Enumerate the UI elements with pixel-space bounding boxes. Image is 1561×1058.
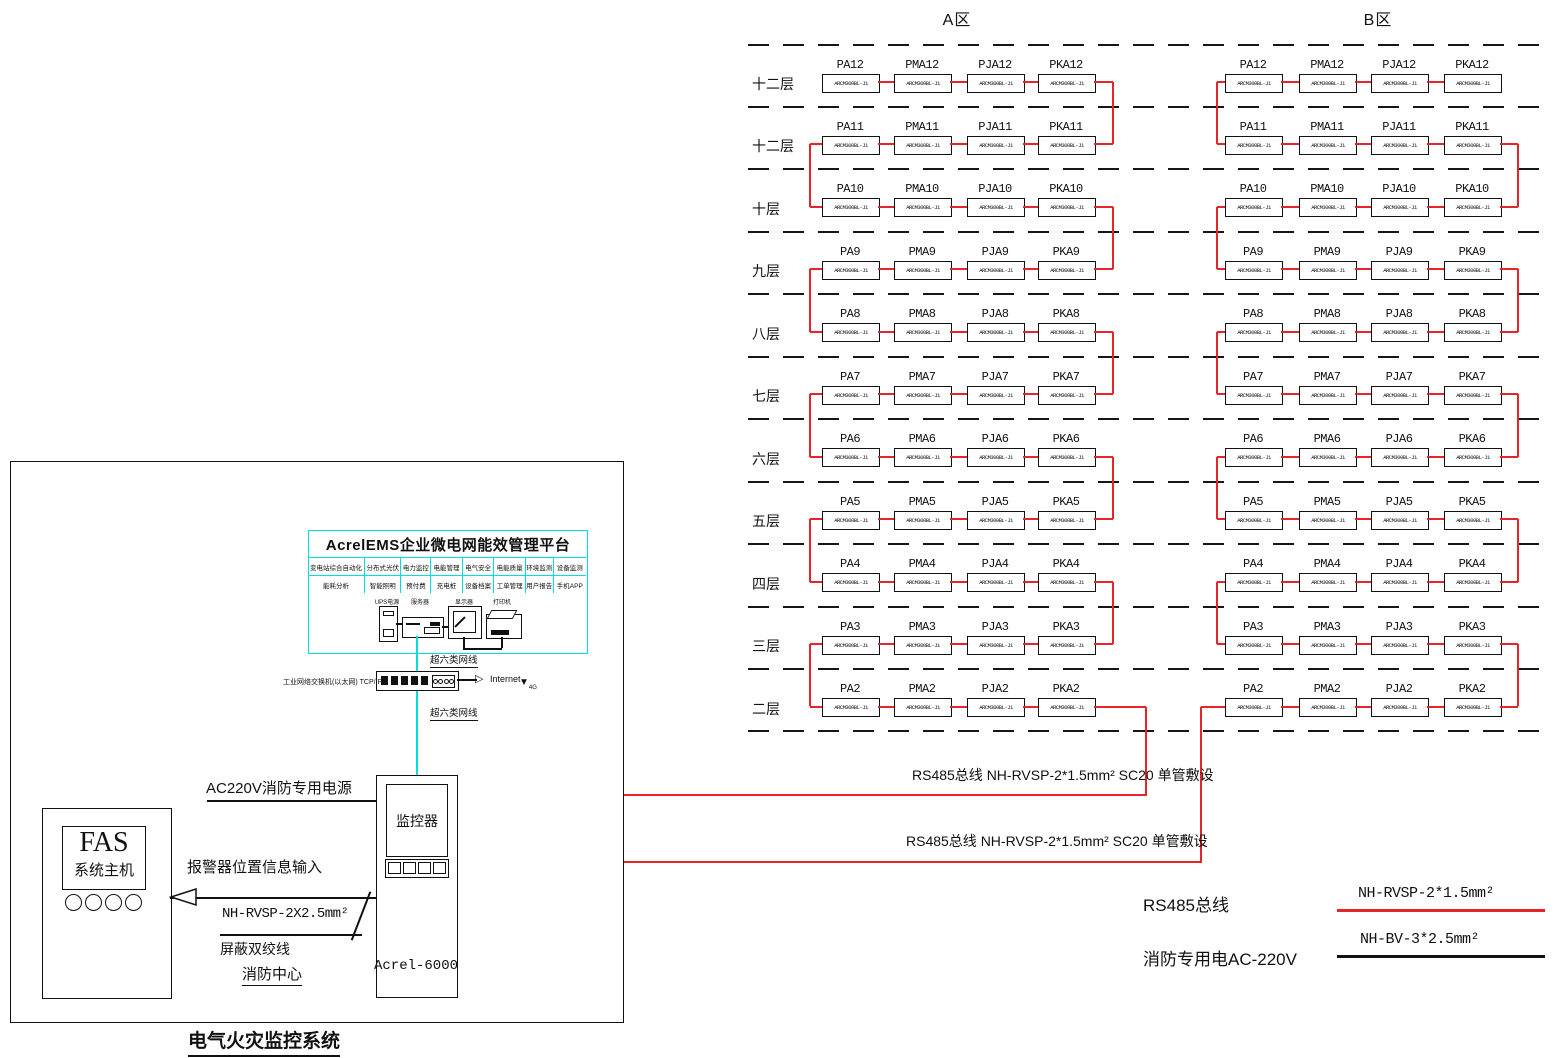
arcm-device-box: ARCM300BL-J1: [1371, 74, 1429, 93]
rs485-segment: [1217, 643, 1225, 645]
arcm-device-box: ARCM300BL-J1: [1038, 573, 1096, 592]
rs485-segment: [1500, 581, 1518, 583]
arcm-device-box: ARCM300BL-J1: [1444, 386, 1502, 405]
rs485-riser: [1517, 644, 1519, 706]
device-tag-label: PKA11: [1049, 120, 1083, 134]
platform-feature-grid: 变电站综合自动化分布式光伏电力监控电能管理电气安全电能质量环境监测设备监测能耗分…: [308, 557, 586, 593]
rs485-segment: [810, 206, 822, 208]
rs485-segment: [1500, 331, 1518, 333]
arcm-device-box: ARCM300BL-J1: [1299, 386, 1357, 405]
arcm-device-box: ARCM300BL-J1: [1299, 511, 1357, 530]
device-tag-label: PA11: [1240, 120, 1267, 134]
arcm-device-box: ARCM300BL-J1: [1038, 448, 1096, 467]
legend-red-line: [1337, 909, 1545, 912]
device-tag-label: PA2: [840, 682, 860, 696]
internet-line: [457, 679, 477, 681]
arcm-device-box: ARCM300BL-J1: [1299, 74, 1357, 93]
device-tag-label: PMA10: [905, 182, 939, 196]
rs485-segment: [1023, 331, 1038, 333]
arcm-device-box: ARCM300BL-J1: [1444, 136, 1502, 155]
network-switch-icon: [376, 671, 459, 691]
device-tag-label: PJA5: [982, 495, 1009, 509]
rs485-segment: [1094, 143, 1113, 145]
legend-power-label: 消防专用电AC-220V: [1143, 945, 1297, 970]
zone-a-title: A区: [943, 6, 972, 30]
device-tag-label: PJA2: [982, 682, 1009, 696]
arcm-device-box: ARCM300BL-J1: [894, 573, 952, 592]
cabinet-model-label: Acrel-6000: [374, 958, 458, 974]
platform-feature-cell: 预付费: [400, 575, 430, 593]
device-tag-label: PMA9: [1314, 245, 1341, 259]
rs485-segment: [810, 331, 822, 333]
device-tag-label: PMA7: [909, 370, 936, 384]
device-tag-label: PA10: [837, 182, 864, 196]
rs485-bus1-label: RS485总线 NH-RVSP-2*1.5mm² SC20 单管敷设: [912, 765, 1214, 785]
arcm-device-box: ARCM300BL-J1: [1225, 573, 1283, 592]
arrow-left-icon: [168, 887, 198, 907]
monitor-unit-label: 监控器: [396, 811, 438, 831]
device-tag-label: PKA4: [1053, 557, 1080, 571]
arcm-device-box: ARCM300BL-J1: [822, 698, 880, 717]
rs485-segment: [1355, 643, 1371, 645]
arcm-device-box: ARCM300BL-J1: [967, 136, 1025, 155]
rs485-segment: [1500, 518, 1518, 520]
rs485-segment: [878, 393, 894, 395]
arcm-device-box: ARCM300BL-J1: [822, 323, 880, 342]
device-tag-label: PJA10: [1382, 182, 1416, 196]
printer-label: 打印机: [493, 597, 511, 606]
rs485-segment: [1427, 143, 1444, 145]
rs485-segment: [1355, 331, 1371, 333]
rs485-segment: [1281, 331, 1299, 333]
arcm-device-box: ARCM300BL-J1: [1299, 261, 1357, 280]
device-tag-label: PMA9: [909, 245, 936, 259]
rs485-segment: [810, 393, 822, 395]
cat6-cable-label-top: 超六类网线: [430, 652, 478, 668]
floor-slab-line: [748, 418, 1548, 420]
arcm-device-box: ARCM300BL-J1: [967, 323, 1025, 342]
device-tag-label: PJA11: [978, 120, 1012, 134]
rs485-segment: [1427, 206, 1444, 208]
rs485-trunk-stub: [1094, 706, 1146, 708]
device-tag-label: PKA8: [1459, 307, 1486, 321]
monitor-label: 显示器: [455, 597, 473, 606]
rs485-segment: [950, 456, 967, 458]
rs485-segment: [878, 331, 894, 333]
rs485-segment: [950, 268, 967, 270]
rs485-riser: [1517, 144, 1519, 206]
rs485-segment: [1094, 393, 1113, 395]
arcm-device-box: ARCM300BL-J1: [967, 573, 1025, 592]
rs485-segment: [1500, 268, 1518, 270]
rs485-segment: [1094, 581, 1113, 583]
rs485-segment: [1023, 706, 1038, 708]
rs485-riser: [1112, 332, 1114, 394]
device-tag-label: PMA6: [909, 432, 936, 446]
floor-slab-line: [748, 231, 1548, 233]
rs485-segment: [878, 456, 894, 458]
device-tag-label: PJA6: [1386, 432, 1413, 446]
floor-slab-line: [748, 481, 1548, 483]
device-tag-label: PMA2: [909, 682, 936, 696]
system-title: 电气火灾监控系统: [188, 1026, 340, 1057]
rs485-segment: [1500, 206, 1518, 208]
rs485-segment: [1094, 331, 1113, 333]
fire-center-label: 消防中心: [242, 963, 302, 986]
device-tag-label: PA5: [1243, 495, 1263, 509]
arcm-device-box: ARCM300BL-J1: [1038, 323, 1096, 342]
device-tag-label: PKA12: [1455, 58, 1489, 72]
arcm-device-box: ARCM300BL-J1: [1371, 698, 1429, 717]
rs485-segment: [878, 518, 894, 520]
device-tag-label: PA5: [840, 495, 860, 509]
platform-feature-cell: 电能质量: [493, 557, 525, 575]
floor-label: 九层: [752, 261, 780, 281]
floor-slab-line: [748, 606, 1548, 608]
platform-feature-cell: 电能管理: [430, 557, 462, 575]
device-tag-label: PJA6: [982, 432, 1009, 446]
wireless-4g-icon: ▼4G: [519, 672, 537, 691]
arcm-device-box: ARCM300BL-J1: [1371, 573, 1429, 592]
platform-feature-cell: 智能照明: [364, 575, 400, 593]
floor-slab-line: [748, 293, 1548, 295]
cable-spec-underline: [220, 934, 362, 936]
arcm-device-box: ARCM300BL-J1: [1444, 323, 1502, 342]
arcm-device-box: ARCM300BL-J1: [1371, 136, 1429, 155]
rs485-riser: [809, 519, 811, 581]
fas-indicator-2: [85, 894, 102, 911]
arcm-device-box: ARCM300BL-J1: [1371, 386, 1429, 405]
arcm-device-box: ARCM300BL-J1: [1371, 448, 1429, 467]
fas-inner-box: FAS 系统主机: [62, 826, 146, 890]
arcm-device-box: ARCM300BL-J1: [1038, 386, 1096, 405]
rs485-segment: [1023, 518, 1038, 520]
rs485-segment: [878, 268, 894, 270]
arcm-device-box: ARCM300BL-J1: [1371, 636, 1429, 655]
switch-label: 工业网络交换机(以太网) TCP/IP: [283, 677, 382, 687]
rs485-segment: [878, 143, 894, 145]
arcm-device-box: ARCM300BL-J1: [1299, 136, 1357, 155]
rs485-segment: [1427, 331, 1444, 333]
device-tag-label: PKA7: [1459, 370, 1486, 384]
rs485-segment: [1355, 81, 1371, 83]
floor-slab-line: [748, 168, 1548, 170]
rs485-segment: [810, 706, 822, 708]
rs485-segment: [950, 518, 967, 520]
arcm-device-box: ARCM300BL-J1: [967, 448, 1025, 467]
alarm-input-label: 报警器位置信息输入: [187, 856, 322, 877]
rs485-segment: [810, 643, 822, 645]
rs485-segment: [1281, 81, 1299, 83]
arcm-device-box: ARCM300BL-J1: [894, 698, 952, 717]
arcm-device-box: ARCM300BL-J1: [1038, 261, 1096, 280]
fas-indicator-3: [105, 894, 122, 911]
device-tag-label: PKA5: [1053, 495, 1080, 509]
platform-feature-cell: 工单管理: [493, 575, 525, 593]
monitor-unit-box: 监控器: [386, 784, 448, 857]
platform-feature-cell: 电气安全: [462, 557, 494, 575]
device-tag-label: PA10: [1240, 182, 1267, 196]
rs485-segment: [1281, 706, 1299, 708]
device-tag-label: PA9: [1243, 245, 1263, 259]
arrow-right-icon: ▷: [475, 672, 483, 685]
platform-feature-cell: 电力监控: [400, 557, 430, 575]
device-tag-label: PMA12: [1310, 58, 1344, 72]
rs485-segment: [950, 331, 967, 333]
floor-label: 十二层: [752, 74, 794, 94]
rs485-segment: [1094, 643, 1113, 645]
rs485-riser: [809, 394, 811, 456]
rs485-segment: [1427, 581, 1444, 583]
ethernet-cable-upper: [416, 636, 418, 671]
rs485-segment: [1427, 706, 1444, 708]
device-tag-label: PMA11: [1310, 120, 1344, 134]
device-tag-label: PJA9: [982, 245, 1009, 259]
arcm-device-box: ARCM300BL-J1: [1038, 636, 1096, 655]
rs485-segment: [1500, 393, 1518, 395]
ac220v-power-line: [207, 800, 376, 802]
arcm-device-box: ARCM300BL-J1: [1038, 198, 1096, 217]
rs485-segment: [1023, 456, 1038, 458]
arcm-device-box: ARCM300BL-J1: [1299, 323, 1357, 342]
platform-feature-cell: 充电桩: [430, 575, 462, 593]
device-tag-label: PMA10: [1310, 182, 1344, 196]
device-tag-label: PA6: [840, 432, 860, 446]
rs485-segment: [1217, 206, 1225, 208]
arcm-device-box: ARCM300BL-J1: [1225, 136, 1283, 155]
rs485-segment: [1094, 81, 1113, 83]
rs485-riser: [1112, 457, 1114, 519]
monitor-icon: [448, 606, 482, 639]
arcm-device-box: ARCM300BL-J1: [822, 386, 880, 405]
device-tag-label: PMA4: [1314, 557, 1341, 571]
device-tag-label: PKA10: [1455, 182, 1489, 196]
rs485-segment: [1094, 518, 1113, 520]
device-tag-label: PA4: [840, 557, 860, 571]
arcm-device-box: ARCM300BL-J1: [967, 74, 1025, 93]
rs485-segment: [1023, 206, 1038, 208]
floor-slab-line: [748, 106, 1548, 108]
arcm-device-box: ARCM300BL-J1: [1225, 261, 1283, 280]
platform-feature-cell: 能耗分析: [308, 575, 364, 593]
rs485-segment: [1281, 206, 1299, 208]
floor-label: 十二层: [752, 136, 794, 156]
legend-black-line: [1337, 955, 1545, 958]
arcm-device-box: ARCM300BL-J1: [1038, 136, 1096, 155]
rs485-segment: [1500, 643, 1518, 645]
rs485-segment: [1281, 581, 1299, 583]
floor-label: 三层: [752, 636, 780, 656]
rs485-segment: [1427, 456, 1444, 458]
legend-rs485-label: RS485总线: [1143, 891, 1229, 916]
device-tag-label: PMA7: [1314, 370, 1341, 384]
floor-slab-line: [748, 543, 1548, 545]
rs485-riser: [1112, 207, 1114, 269]
device-tag-label: PKA3: [1459, 620, 1486, 634]
rs485-riser: [809, 644, 811, 706]
arcm-device-box: ARCM300BL-J1: [1299, 636, 1357, 655]
arcm-device-box: ARCM300BL-J1: [894, 386, 952, 405]
device-tag-label: PJA12: [978, 58, 1012, 72]
arcm-device-box: ARCM300BL-J1: [822, 573, 880, 592]
device-tag-label: PKA2: [1053, 682, 1080, 696]
arcm-device-box: ARCM300BL-J1: [1225, 323, 1283, 342]
device-tag-label: PKA5: [1459, 495, 1486, 509]
device-tag-label: PKA9: [1459, 245, 1486, 259]
rs485-segment: [1094, 206, 1113, 208]
arcm-device-box: ARCM300BL-J1: [1225, 74, 1283, 93]
rs485-segment: [1355, 518, 1371, 520]
rs485-riser: [809, 269, 811, 331]
floor-label: 八层: [752, 324, 780, 344]
rs485-segment: [1500, 456, 1518, 458]
arcm-device-box: ARCM300BL-J1: [967, 636, 1025, 655]
device-tag-label: PJA9: [1386, 245, 1413, 259]
rs485-riser: [1216, 457, 1218, 519]
rs485-segment: [950, 81, 967, 83]
rs485-segment: [1500, 143, 1518, 145]
device-tag-label: PJA8: [1386, 307, 1413, 321]
rs485-riser: [1112, 582, 1114, 644]
device-tag-label: PMA3: [909, 620, 936, 634]
rs485-segment: [1427, 643, 1444, 645]
floor-label: 五层: [752, 511, 780, 531]
server-icon: [402, 617, 444, 638]
fas-title: FAS: [63, 827, 145, 859]
arcm-device-box: ARCM300BL-J1: [1371, 261, 1429, 280]
floor-label: 七层: [752, 386, 780, 406]
fas-indicator-4: [125, 894, 142, 911]
rs485-segment: [1281, 518, 1299, 520]
rs485-segment: [1355, 393, 1371, 395]
device-tag-label: PKA4: [1459, 557, 1486, 571]
arcm-device-box: ARCM300BL-J1: [1038, 511, 1096, 530]
arcm-device-box: ARCM300BL-J1: [894, 323, 952, 342]
floor-slab-line: [748, 44, 1548, 46]
platform-feature-cell: 分布式光伏: [364, 557, 400, 575]
rs485-riser: [1216, 82, 1218, 144]
device-tag-label: PA11: [837, 120, 864, 134]
rs485-segment: [810, 456, 822, 458]
arcm-device-box: ARCM300BL-J1: [1225, 636, 1283, 655]
device-tag-label: PJA7: [982, 370, 1009, 384]
arcm-device-box: ARCM300BL-J1: [822, 198, 880, 217]
rs485-segment: [878, 206, 894, 208]
rs485-segment: [1217, 581, 1225, 583]
rs485-trunk-stub: [1201, 706, 1225, 708]
device-tag-label: PMA5: [909, 495, 936, 509]
rs485-segment: [1355, 143, 1371, 145]
device-tag-label: PKA11: [1455, 120, 1489, 134]
device-tag-label: PJA4: [982, 557, 1009, 571]
rs485-segment: [878, 706, 894, 708]
device-tag-label: PMA8: [1314, 307, 1341, 321]
rs485-segment: [950, 581, 967, 583]
arcm-device-box: ARCM300BL-J1: [1225, 698, 1283, 717]
arcm-device-box: ARCM300BL-J1: [967, 198, 1025, 217]
arcm-device-box: ARCM300BL-J1: [894, 636, 952, 655]
floor-label: 十层: [752, 199, 780, 219]
printer-icon: [486, 614, 522, 639]
arcm-device-box: ARCM300BL-J1: [1444, 698, 1502, 717]
alarm-input-line: [170, 897, 376, 899]
device-tag-label: PKA12: [1049, 58, 1083, 72]
rs485-riser: [1517, 269, 1519, 331]
arcm-device-box: ARCM300BL-J1: [1299, 198, 1357, 217]
arcm-device-box: ARCM300BL-J1: [1371, 198, 1429, 217]
floor-label: 六层: [752, 449, 780, 469]
device-tag-label: PJA3: [1386, 620, 1413, 634]
arcm-device-box: ARCM300BL-J1: [894, 136, 952, 155]
device-tag-label: PMA12: [905, 58, 939, 72]
device-tag-label: PA12: [1240, 58, 1267, 72]
platform-feature-cell: 手机APP: [553, 575, 586, 593]
rs485-segment: [878, 643, 894, 645]
rs485-segment: [1217, 81, 1225, 83]
device-tag-label: PA8: [1243, 307, 1263, 321]
arcm-device-box: ARCM300BL-J1: [822, 74, 880, 93]
fas-subtitle: 系统主机: [63, 859, 145, 880]
device-tag-label: PMA6: [1314, 432, 1341, 446]
device-tag-label: PKA9: [1053, 245, 1080, 259]
zone-b-title: B区: [1364, 6, 1393, 30]
arcm-device-box: ARCM300BL-J1: [1225, 448, 1283, 467]
platform-feature-cell: 用户报告: [525, 575, 553, 593]
arcm-device-box: ARCM300BL-J1: [1371, 511, 1429, 530]
rs485-segment: [1355, 706, 1371, 708]
arcm-device-box: ARCM300BL-J1: [1444, 448, 1502, 467]
rs485-riser: [809, 144, 811, 206]
arcm-device-box: ARCM300BL-J1: [822, 136, 880, 155]
device-tag-label: PA3: [1243, 620, 1263, 634]
rs485-segment: [1355, 206, 1371, 208]
arcm-device-box: ARCM300BL-J1: [1444, 74, 1502, 93]
arcm-device-box: ARCM300BL-J1: [1444, 261, 1502, 280]
internet-label: Internet: [490, 674, 521, 684]
rs485-segment: [1427, 81, 1444, 83]
rs485-segment: [878, 81, 894, 83]
device-tag-label: PA6: [1243, 432, 1263, 446]
device-tag-label: PMA2: [1314, 682, 1341, 696]
rs485-segment: [1217, 393, 1225, 395]
shielded-pair-label: 屏蔽双绞线: [220, 939, 290, 959]
rs485-segment: [950, 706, 967, 708]
rs485-segment: [1355, 456, 1371, 458]
drawing-canvas: A区 B区 十二层十二层十层九层八层七层六层五层四层三层二层PA12ARCM30…: [0, 0, 1561, 1058]
rs485-riser: [1216, 582, 1218, 644]
platform-feature-cell: 设备档案: [462, 575, 494, 593]
arcm-device-box: ARCM300BL-J1: [894, 261, 952, 280]
arcm-device-box: ARCM300BL-J1: [1299, 448, 1357, 467]
device-tag-label: PJA5: [1386, 495, 1413, 509]
rs485-segment: [1023, 393, 1038, 395]
rs485-segment: [950, 643, 967, 645]
arcm-device-box: ARCM300BL-J1: [822, 261, 880, 280]
floor-label: 四层: [752, 574, 780, 594]
arcm-device-box: ARCM300BL-J1: [1225, 386, 1283, 405]
arcm-device-box: ARCM300BL-J1: [1444, 573, 1502, 592]
device-tag-label: PKA6: [1459, 432, 1486, 446]
device-tag-label: PMA3: [1314, 620, 1341, 634]
rs485-segment: [1023, 643, 1038, 645]
rs485-segment: [1023, 581, 1038, 583]
rs485-segment: [1094, 268, 1113, 270]
platform-feature-cell: 变电站综合自动化: [308, 557, 364, 575]
rs485-segment: [1217, 331, 1225, 333]
device-tag-label: PKA2: [1459, 682, 1486, 696]
device-tag-label: PKA6: [1053, 432, 1080, 446]
rs485-segment: [950, 206, 967, 208]
